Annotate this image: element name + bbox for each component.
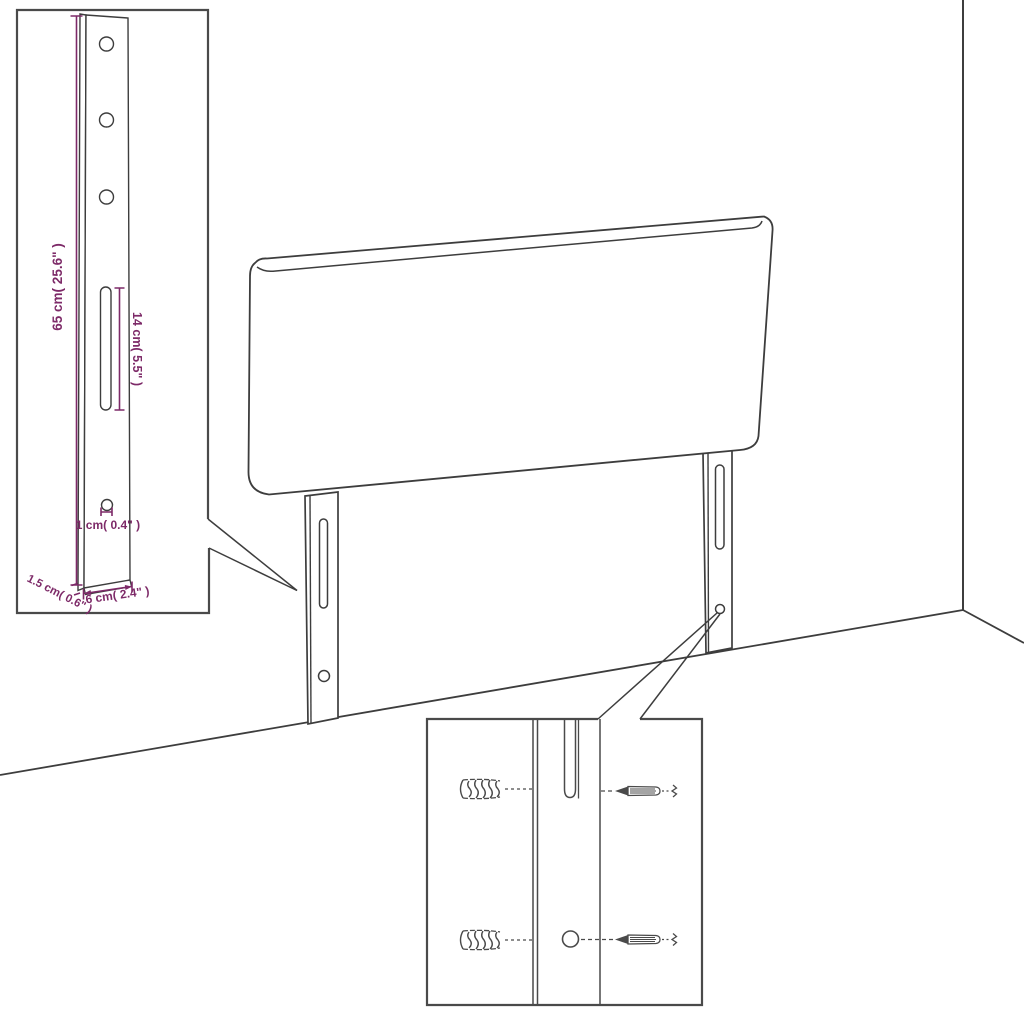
- leg-edge-line: [708, 452, 709, 652]
- panel-outline: [248, 217, 772, 495]
- dimension-label-slot: 14 cm( 5.5" ): [130, 312, 144, 386]
- diagram-canvas: 65 cm( 25.6" ) 14 cm( 5.5" ) 1 cm( 0.4" …: [0, 0, 1024, 1024]
- bracket-dimension-inset: 65 cm( 25.6" ) 14 cm( 5.5" ) 1 cm( 0.4" …: [17, 10, 209, 616]
- callout-line: [640, 614, 720, 719]
- inset-callout-lines-left: [208, 519, 297, 591]
- floor-line-right: [963, 610, 1024, 643]
- mounting-detail-inset: [427, 719, 702, 1005]
- dimension-label-hole: 1 cm( 0.4" ): [76, 518, 140, 532]
- dimension-label-height: 65 cm( 25.6" ): [50, 243, 65, 330]
- bracket-front-face: [84, 15, 130, 588]
- callout-line: [598, 613, 717, 719]
- headboard-panel: [248, 217, 772, 495]
- headboard-dimension-diagram: 65 cm( 25.6" ) 14 cm( 5.5" ) 1 cm( 0.4" …: [0, 0, 1024, 1024]
- inset-callout-lines-right: [598, 613, 720, 719]
- headboard-leg-left: [305, 492, 338, 724]
